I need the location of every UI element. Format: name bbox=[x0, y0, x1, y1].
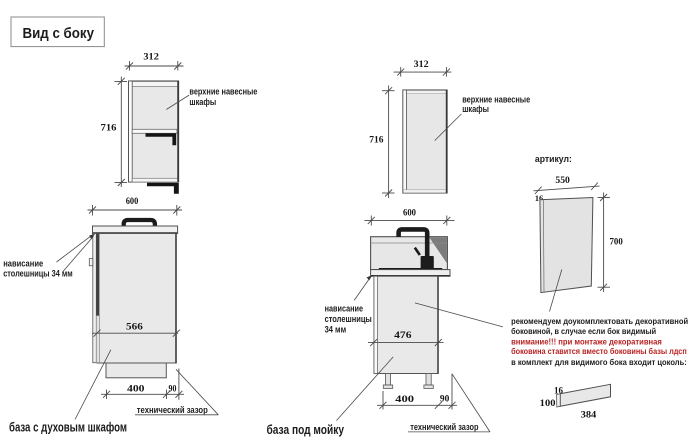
svg-text:база под мойку: база под мойку bbox=[267, 422, 345, 437]
svg-text:в комплект для видимого бока в: в комплект для видимого бока входит цоко… bbox=[511, 357, 687, 367]
svg-text:90: 90 bbox=[440, 395, 450, 405]
svg-text:база с духовым шкафом: база с духовым шкафом bbox=[9, 420, 127, 435]
svg-text:рекомендуем доукомплектовать д: рекомендуем доукомплектовать декоративно… bbox=[511, 316, 688, 326]
svg-text:400: 400 bbox=[127, 384, 145, 394]
svg-text:столешницы: столешницы bbox=[325, 314, 372, 324]
svg-text:600: 600 bbox=[126, 197, 139, 207]
svg-text:700: 700 bbox=[610, 237, 624, 247]
svg-text:476: 476 bbox=[394, 331, 412, 341]
svg-text:боковиной, в случае если бок в: боковиной, в случае если бок видимый bbox=[511, 326, 656, 336]
svg-text:внимание!!! при монтаже декора: внимание!!! при монтаже декоративная bbox=[511, 337, 662, 347]
svg-text:шкафы: шкафы bbox=[462, 104, 489, 114]
svg-text:600: 600 bbox=[403, 208, 416, 218]
svg-text:шкафы: шкафы bbox=[189, 97, 216, 107]
svg-text:550: 550 bbox=[555, 176, 570, 186]
svg-text:312: 312 bbox=[143, 52, 159, 62]
svg-text:столешницы 34 мм: столешницы 34 мм bbox=[3, 269, 73, 279]
svg-text:716: 716 bbox=[369, 136, 383, 146]
svg-text:400: 400 bbox=[395, 395, 414, 405]
svg-text:технический зазор: технический зазор bbox=[137, 405, 208, 415]
svg-text:артикул:: артикул: bbox=[535, 154, 572, 164]
svg-text:Вид с боку: Вид с боку bbox=[23, 26, 95, 42]
svg-text:100: 100 bbox=[540, 399, 556, 409]
svg-text:нависание: нависание bbox=[325, 304, 363, 314]
svg-text:технический зазор: технический зазор bbox=[410, 422, 478, 432]
svg-text:34 мм: 34 мм bbox=[325, 324, 347, 334]
svg-text:716: 716 bbox=[101, 124, 117, 134]
svg-text:верхние навесные: верхние навесные bbox=[462, 94, 530, 104]
svg-text:384: 384 bbox=[581, 410, 597, 420]
svg-text:боковина ставится вместо боков: боковина ставится вместо боковины базы л… bbox=[511, 346, 687, 356]
svg-text:312: 312 bbox=[414, 60, 429, 70]
svg-text:90: 90 bbox=[169, 384, 177, 394]
svg-text:верхние навесные: верхние навесные bbox=[189, 87, 257, 97]
svg-text:566: 566 bbox=[126, 323, 143, 333]
svg-text:нависание: нависание bbox=[3, 258, 43, 268]
